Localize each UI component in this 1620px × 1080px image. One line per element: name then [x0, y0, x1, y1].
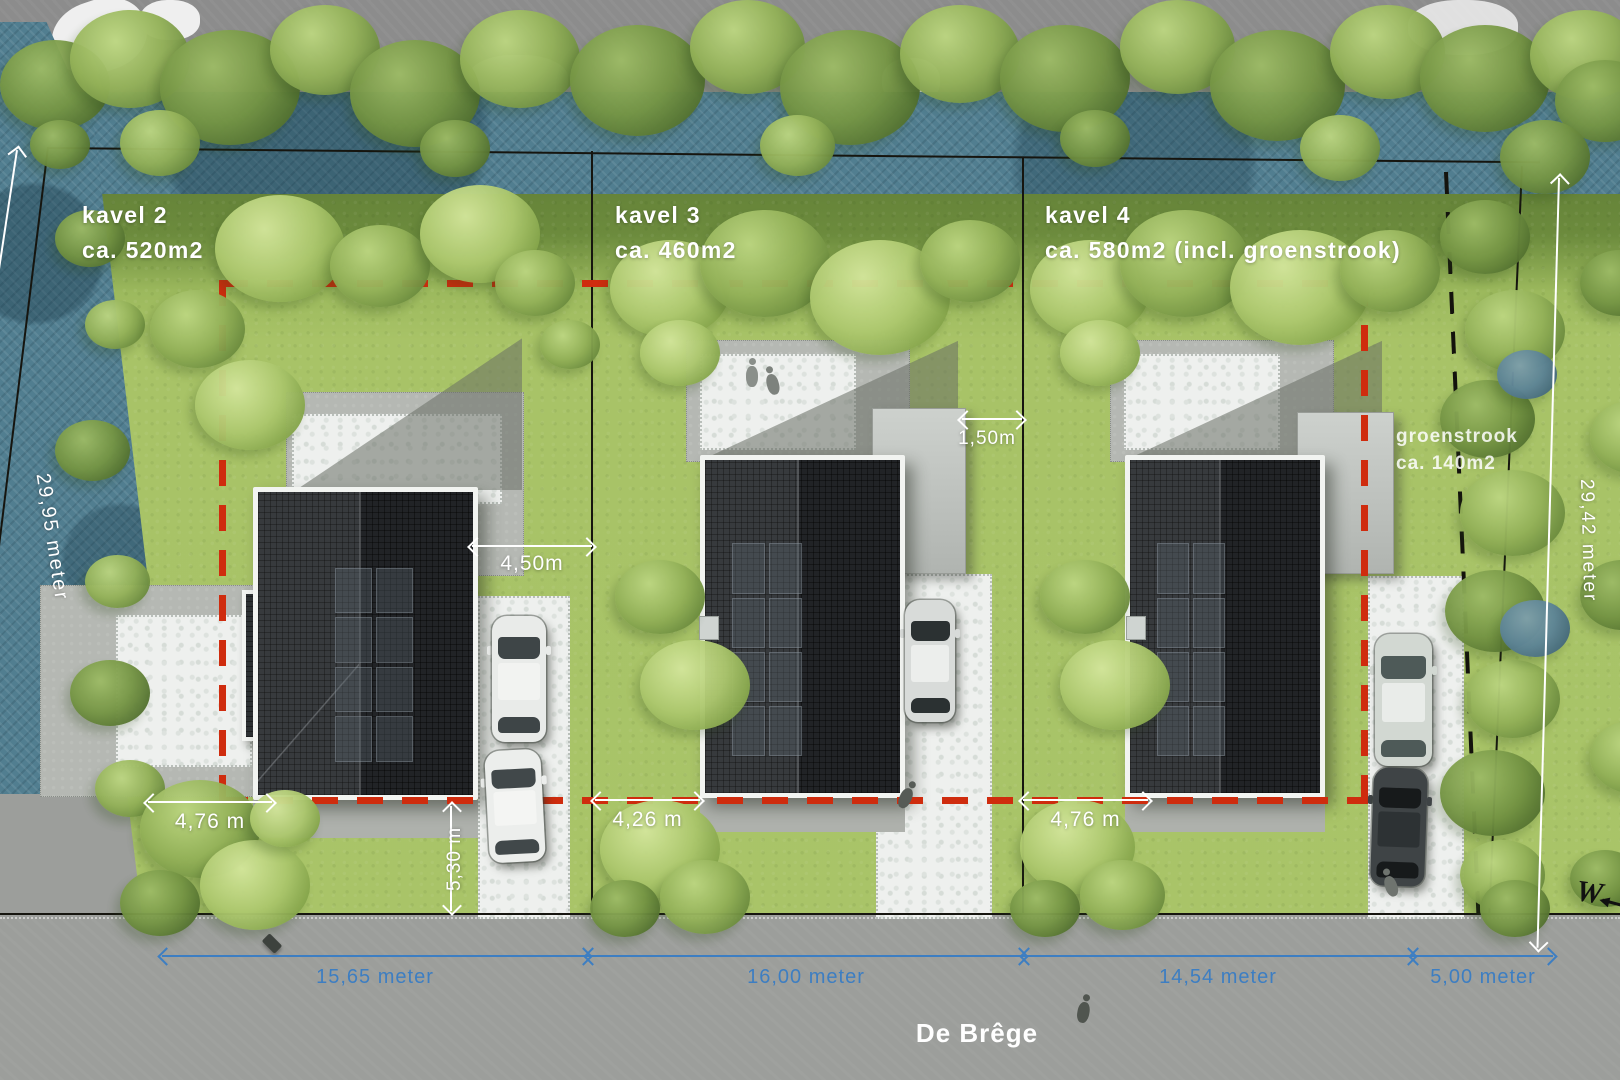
- kavel4-name: kavel 4: [1045, 198, 1401, 233]
- dimension-arrow-kavel2-setback: [148, 801, 272, 803]
- car-windshield: [1379, 787, 1422, 809]
- building-zone-line-left: [219, 280, 226, 804]
- kavel3-area: ca. 460m2: [615, 233, 737, 268]
- kavel2-label: kavel 2 ca. 520m2: [82, 198, 204, 267]
- dimension-arrow-kavel4-setback: [1023, 799, 1148, 801]
- car-roof: [911, 645, 949, 682]
- groenstrook-line1: groenstrook: [1396, 424, 1526, 451]
- dimension-label-4-50m: 4,50m: [472, 552, 592, 576]
- groenstrook-line2: ca. 140m2: [1396, 451, 1526, 478]
- site-plan: kavel 2 ca. 520m2 kavel 3 ca. 460m2 kave…: [0, 0, 1620, 1080]
- building-zone-line-right: [1361, 280, 1368, 804]
- dimension-label-front-setback: 5,30 m: [444, 819, 466, 899]
- street-dimension-arrow-groenstrook: [1413, 955, 1553, 957]
- kavel3-name: kavel 3: [615, 198, 737, 233]
- car-windshield: [491, 768, 536, 789]
- kavel4-label: kavel 4 ca. 580m2 (incl. groenstrook): [1045, 198, 1401, 267]
- compass-west-label: W: [1574, 874, 1605, 911]
- car: [1375, 634, 1432, 766]
- dimension-label-right-boundary: 29,42 meter: [1575, 479, 1600, 603]
- dimension-label-1-50m: 1,50m: [932, 428, 1042, 450]
- car-rear-window: [911, 698, 950, 714]
- dimension-label-kavel3-setback: 4,26 m: [585, 808, 710, 832]
- car-windshield: [498, 637, 540, 658]
- car-rear-window: [495, 838, 539, 855]
- dimension-arrow-1-50m: [962, 418, 1022, 420]
- car-rear-window: [1381, 740, 1425, 757]
- street-name: De Brêge: [877, 1018, 1077, 1049]
- car-roof: [493, 790, 537, 826]
- car: [905, 600, 955, 722]
- house-kavel4: [1125, 455, 1325, 798]
- person-icon: [746, 358, 758, 388]
- street-dimension-arrow-kavel4: [1024, 955, 1413, 957]
- car-windshield: [1381, 656, 1425, 678]
- dimension-arrow-4-50m: [472, 545, 592, 547]
- car: [1370, 767, 1428, 887]
- door-kavel4: [1126, 616, 1146, 640]
- street-surface: [0, 915, 1620, 1080]
- roof-slope-right: [1219, 460, 1320, 793]
- gravel-path-kavel2: [116, 615, 252, 767]
- road-marking: [1408, 0, 1518, 55]
- kavel3-label: kavel 3 ca. 460m2: [615, 198, 737, 267]
- car-roof: [498, 663, 539, 701]
- car-roof: [1382, 683, 1425, 723]
- street-dimension-label-kavel2: 15,65 meter: [275, 966, 475, 989]
- dimension-label-kavel2-setback: 4,76 m: [148, 810, 272, 834]
- building-zone-line-top: [222, 280, 1368, 287]
- door-kavel3: [699, 616, 719, 640]
- street-dimension-label-kavel4: 14,54 meter: [1118, 966, 1318, 989]
- street-dimension-arrow-kavel2: [162, 955, 588, 957]
- building-zone-line-bottom: [222, 797, 1368, 804]
- groenstrook-label: groenstrook ca. 140m2: [1396, 424, 1526, 477]
- solar-panels: [1157, 543, 1225, 756]
- dimension-arrow-kavel3-setback: [595, 799, 700, 801]
- house-kavel2: [253, 487, 478, 800]
- street-dimension-arrow-kavel3: [588, 955, 1024, 957]
- water-ditch-top: [0, 92, 1620, 194]
- kavel4-area: ca. 580m2 (incl. groenstrook): [1045, 233, 1401, 268]
- roof-slope-right: [797, 460, 900, 793]
- kavel2-name: kavel 2: [82, 198, 204, 233]
- street-dimension-label-groenstrook: 5,00 meter: [1383, 966, 1583, 989]
- dimension-label-kavel4-setback: 4,76 m: [1023, 808, 1148, 832]
- car-rear-window: [498, 717, 540, 733]
- street-dimension-label-kavel3: 16,00 meter: [706, 966, 906, 989]
- house-kavel3: [700, 455, 905, 798]
- solar-panels: [335, 568, 412, 762]
- car: [484, 749, 546, 864]
- car-roof: [1378, 811, 1420, 848]
- road-marking: [140, 0, 200, 40]
- car-windshield: [911, 621, 950, 642]
- street-edge-line: [0, 913, 1620, 915]
- kavel2-area: ca. 520m2: [82, 233, 204, 268]
- solar-panels: [732, 543, 802, 756]
- car: [492, 616, 546, 742]
